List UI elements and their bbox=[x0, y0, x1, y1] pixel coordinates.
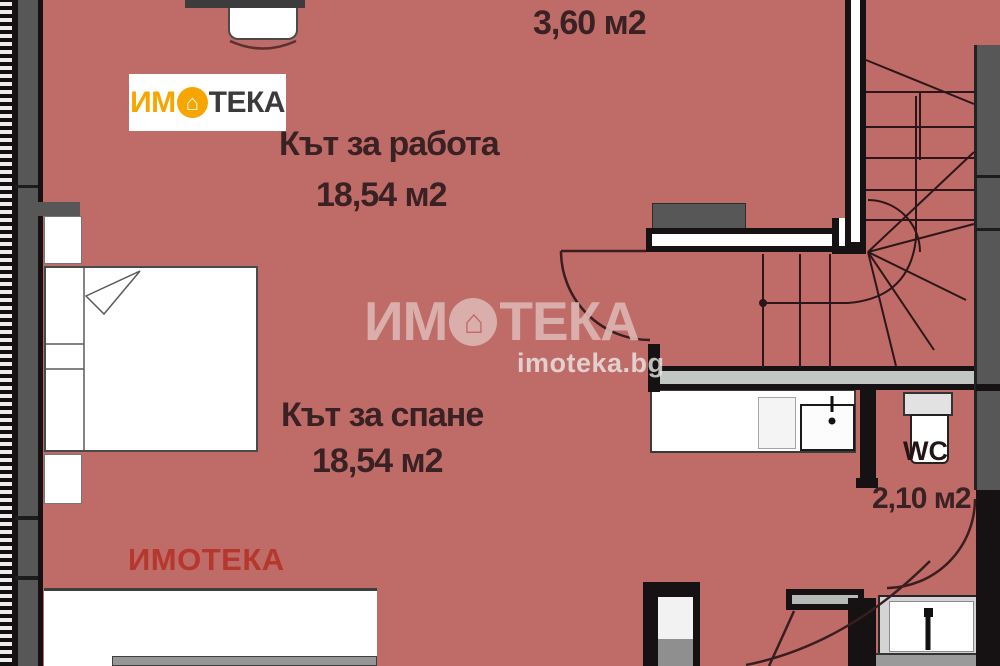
wall-pier bbox=[38, 202, 80, 216]
center-watermark: ИМ⌂ТЕКА bbox=[364, 294, 639, 349]
room-label-work: Кът за работа bbox=[279, 127, 499, 161]
toilet-tank bbox=[903, 392, 953, 416]
door-stub-gap bbox=[658, 597, 693, 639]
right-wall-core bbox=[977, 45, 1000, 490]
room-label-wc-area: 2,10 м2 bbox=[872, 484, 971, 514]
left-wall-insulation-hatch bbox=[0, 0, 12, 666]
left-wall-core bbox=[18, 0, 38, 666]
room-label-wc: WC bbox=[903, 438, 948, 465]
staircase bbox=[759, 60, 974, 368]
site-watermark: imoteka.bg bbox=[517, 350, 665, 377]
watermark-text-teka: ТЕКА bbox=[499, 294, 639, 349]
nightstand bbox=[44, 454, 82, 504]
terrace-area bbox=[44, 588, 377, 666]
room-label-work-area: 18,54 м2 bbox=[316, 178, 447, 212]
top-counter-edge bbox=[185, 0, 305, 8]
door-stub-fill bbox=[658, 639, 693, 666]
room-label-sleep: Кът за спане bbox=[281, 398, 483, 432]
stair-wall-stub-gap bbox=[839, 218, 845, 246]
room-label-bath-area: 3,60 м2 bbox=[533, 6, 646, 40]
stair-wall-core bbox=[851, 0, 860, 242]
vanity-sink bbox=[889, 601, 974, 652]
room-label-sleep-area: 18,54 м2 bbox=[312, 444, 443, 478]
bed bbox=[44, 266, 258, 452]
terrace-step bbox=[112, 656, 377, 666]
door-stub-jamb bbox=[693, 597, 700, 666]
right-wall-joint bbox=[976, 384, 1000, 391]
red-watermark: ИМОТЕКА bbox=[128, 544, 285, 575]
logo-house-icon: ⌂ bbox=[177, 87, 208, 118]
floor-plan: 3,60 м2 Кът за работа 18,54 м2 Кът за сп… bbox=[0, 0, 1000, 666]
door-stub-side bbox=[643, 582, 658, 666]
watermark-text-im: ИМ bbox=[364, 294, 447, 349]
left-wall-joint-mark bbox=[15, 576, 38, 580]
right-wall-lower bbox=[976, 490, 1000, 666]
logo-text-teka: ТЕКА bbox=[209, 86, 285, 120]
nightstand bbox=[44, 216, 82, 264]
logo-text-im: ИМ bbox=[130, 86, 176, 120]
bottom-door-swing-small bbox=[769, 611, 794, 666]
left-wall-inner-line bbox=[38, 0, 43, 666]
middle-wall-core bbox=[652, 234, 844, 246]
right-wall-joint-mark bbox=[976, 228, 1000, 231]
wc-wall bbox=[860, 390, 876, 486]
stair-wall-stub-cap bbox=[832, 248, 866, 254]
left-wall-joint-mark bbox=[15, 516, 38, 520]
imoteka-logo: ИМ⌂ТЕКА bbox=[129, 74, 286, 131]
bathroom-left-wall bbox=[848, 598, 876, 666]
kitchen-sink bbox=[800, 404, 855, 451]
basin-arc bbox=[230, 41, 296, 49]
watermark-house-icon: ⌂ bbox=[449, 298, 497, 346]
kitchen-wall-core bbox=[648, 371, 978, 384]
left-wall-joint-mark bbox=[15, 185, 38, 188]
kitchen-wall-bottom-edge bbox=[648, 384, 978, 390]
right-wall-joint-mark bbox=[976, 175, 1000, 178]
cooktop bbox=[758, 397, 796, 449]
